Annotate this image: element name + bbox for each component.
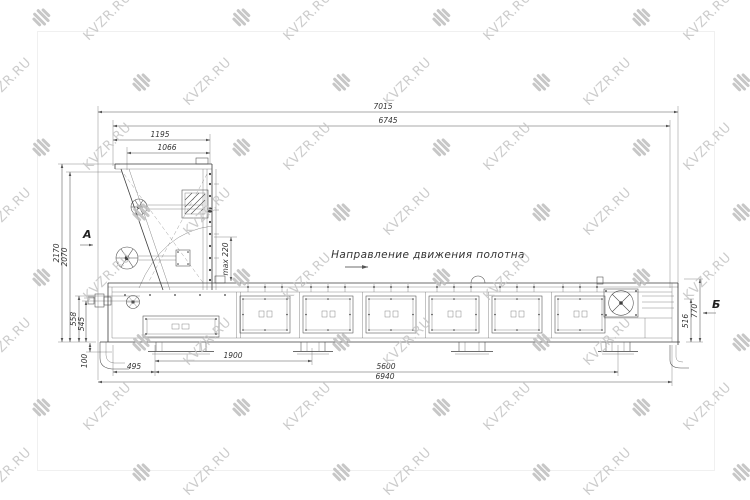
- watermark-layer: KVZR.RUKVZR.RUKVZR.RUKVZR.RUKVZR.RUKVZR.…: [0, 0, 750, 500]
- kvzr-logo-icon: [625, 1, 656, 32]
- kvzr-logo-icon: [425, 391, 456, 422]
- kvzr-logo-icon: [525, 326, 556, 357]
- watermark-text: KVZR.RU: [181, 445, 235, 499]
- kvzr-logo-icon: [725, 456, 750, 487]
- watermark-text: KVZR.RU: [281, 0, 335, 44]
- kvzr-logo-icon: [25, 391, 56, 422]
- kvzr-logo-icon: [425, 131, 456, 162]
- watermark-text: KVZR.RU: [581, 445, 635, 499]
- kvzr-logo-icon: [225, 1, 256, 32]
- kvzr-logo-icon: [325, 456, 356, 487]
- watermark-text: KVZR.RU: [681, 380, 735, 434]
- watermark-text: KVZR.RU: [581, 55, 635, 109]
- watermark-text: KVZR.RU: [681, 0, 735, 44]
- kvzr-logo-icon: [725, 66, 750, 97]
- kvzr-logo-icon: [525, 66, 556, 97]
- kvzr-logo-icon: [425, 1, 456, 32]
- kvzr-logo-icon: [725, 196, 750, 227]
- watermark-text: KVZR.RU: [0, 185, 34, 239]
- kvzr-logo-icon: [225, 131, 256, 162]
- kvzr-logo-icon: [625, 391, 656, 422]
- watermark-text: KVZR.RU: [81, 0, 135, 44]
- kvzr-logo-icon: [625, 131, 656, 162]
- watermark-text: KVZR.RU: [681, 250, 735, 304]
- watermark-text: KVZR.RU: [681, 120, 735, 174]
- watermark-text: KVZR.RU: [181, 315, 235, 369]
- watermark-text: KVZR.RU: [481, 380, 535, 434]
- kvzr-logo-icon: [525, 456, 556, 487]
- watermark-text: KVZR.RU: [81, 250, 135, 304]
- watermark-text: KVZR.RU: [81, 380, 135, 434]
- watermark-text: KVZR.RU: [381, 445, 435, 499]
- kvzr-logo-icon: [325, 66, 356, 97]
- watermark-text: KVZR.RU: [81, 120, 135, 174]
- kvzr-logo-icon: [325, 196, 356, 227]
- kvzr-logo-icon: [25, 261, 56, 292]
- kvzr-logo-icon: [125, 66, 156, 97]
- kvzr-logo-icon: [225, 261, 256, 292]
- watermark-text: KVZR.RU: [0, 315, 34, 369]
- watermark-text: KVZR.RU: [0, 55, 34, 109]
- watermark-text: KVZR.RU: [581, 185, 635, 239]
- watermark-text: KVZR.RU: [281, 120, 335, 174]
- watermark-text: KVZR.RU: [381, 185, 435, 239]
- watermark-text: KVZR.RU: [481, 0, 535, 44]
- kvzr-logo-icon: [25, 131, 56, 162]
- kvzr-logo-icon: [325, 326, 356, 357]
- watermark-text: KVZR.RU: [0, 445, 34, 499]
- kvzr-logo-icon: [25, 1, 56, 32]
- watermark-text: KVZR.RU: [181, 185, 235, 239]
- watermark-text: KVZR.RU: [281, 250, 335, 304]
- watermark-text: KVZR.RU: [481, 250, 535, 304]
- watermark-text: KVZR.RU: [281, 380, 335, 434]
- watermark-text: KVZR.RU: [381, 55, 435, 109]
- kvzr-logo-icon: [425, 261, 456, 292]
- watermark-text: KVZR.RU: [581, 315, 635, 369]
- kvzr-logo-icon: [525, 196, 556, 227]
- kvzr-logo-icon: [125, 456, 156, 487]
- kvzr-logo-icon: [725, 326, 750, 357]
- watermark-text: KVZR.RU: [381, 315, 435, 369]
- watermark-text: KVZR.RU: [181, 55, 235, 109]
- drawing-page: 7015 6745 1195 1066 2170 2070 558 545 10…: [0, 0, 750, 500]
- kvzr-logo-icon: [625, 261, 656, 292]
- kvzr-logo-icon: [125, 196, 156, 227]
- kvzr-logo-icon: [125, 326, 156, 357]
- kvzr-logo-icon: [225, 391, 256, 422]
- watermark-text: KVZR.RU: [481, 120, 535, 174]
